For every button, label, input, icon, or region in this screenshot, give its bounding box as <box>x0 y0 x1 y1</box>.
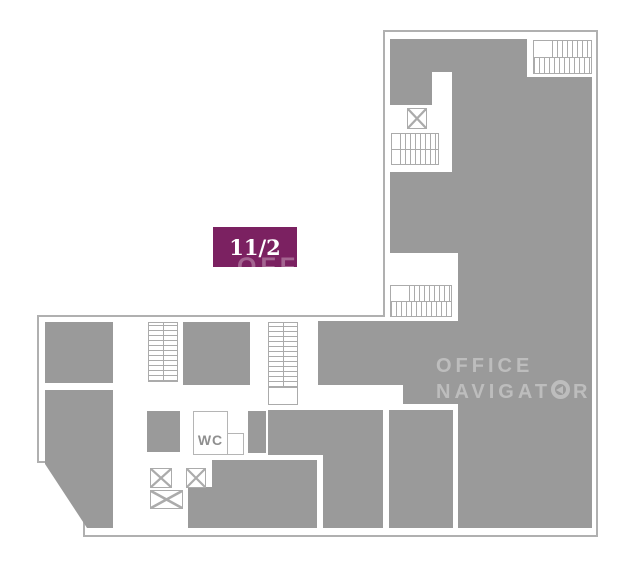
stairs-lower-run <box>391 302 451 317</box>
room-block <box>45 322 113 383</box>
stairs-icon <box>390 285 452 317</box>
stairs-icon <box>533 40 592 74</box>
office-badge-11-2[interactable]: 11/2 <box>213 227 297 267</box>
stairs-right-run <box>284 323 298 387</box>
stairs-upper-run <box>534 41 591 58</box>
stairs-right-run <box>164 323 178 381</box>
room-block <box>527 77 592 253</box>
room-blocks <box>45 39 592 528</box>
room-block <box>403 385 458 404</box>
stairs-left-run <box>149 323 164 381</box>
room-block <box>318 321 592 385</box>
stairs-upper-run <box>391 286 451 302</box>
stairs-upper-run <box>392 134 438 150</box>
office-badge-label: 11/2 <box>229 237 281 258</box>
room-block-chamfer <box>45 390 113 528</box>
elevator-icon <box>186 468 206 488</box>
room-block <box>389 410 453 528</box>
room-block <box>458 253 592 322</box>
room-block <box>390 39 432 105</box>
room-block <box>147 411 180 452</box>
stairs-lower-run <box>534 58 591 74</box>
room-block <box>248 411 266 453</box>
stairs-icon <box>268 322 298 405</box>
wc-room: WC <box>193 411 228 455</box>
stairs-lower-run <box>392 150 438 165</box>
elevator-icon <box>150 468 172 488</box>
room-block <box>452 39 527 253</box>
floor-plan-drawing <box>0 0 630 575</box>
stairs-icon <box>391 133 439 165</box>
stairs-left-run <box>269 323 284 387</box>
elevator-icon <box>150 490 183 509</box>
room-block <box>183 322 250 385</box>
floor-plan-canvas: WC 11/2 OFFICE OFFICE NAVIGATR <box>0 0 630 575</box>
room-block <box>390 172 452 253</box>
stairs-icon <box>148 322 178 382</box>
wc-room-extension <box>227 433 244 455</box>
wc-label: WC <box>198 432 223 454</box>
room-block <box>432 39 452 72</box>
room-block-l <box>188 460 317 528</box>
elevator-icon <box>407 108 427 129</box>
room-block <box>458 385 592 528</box>
